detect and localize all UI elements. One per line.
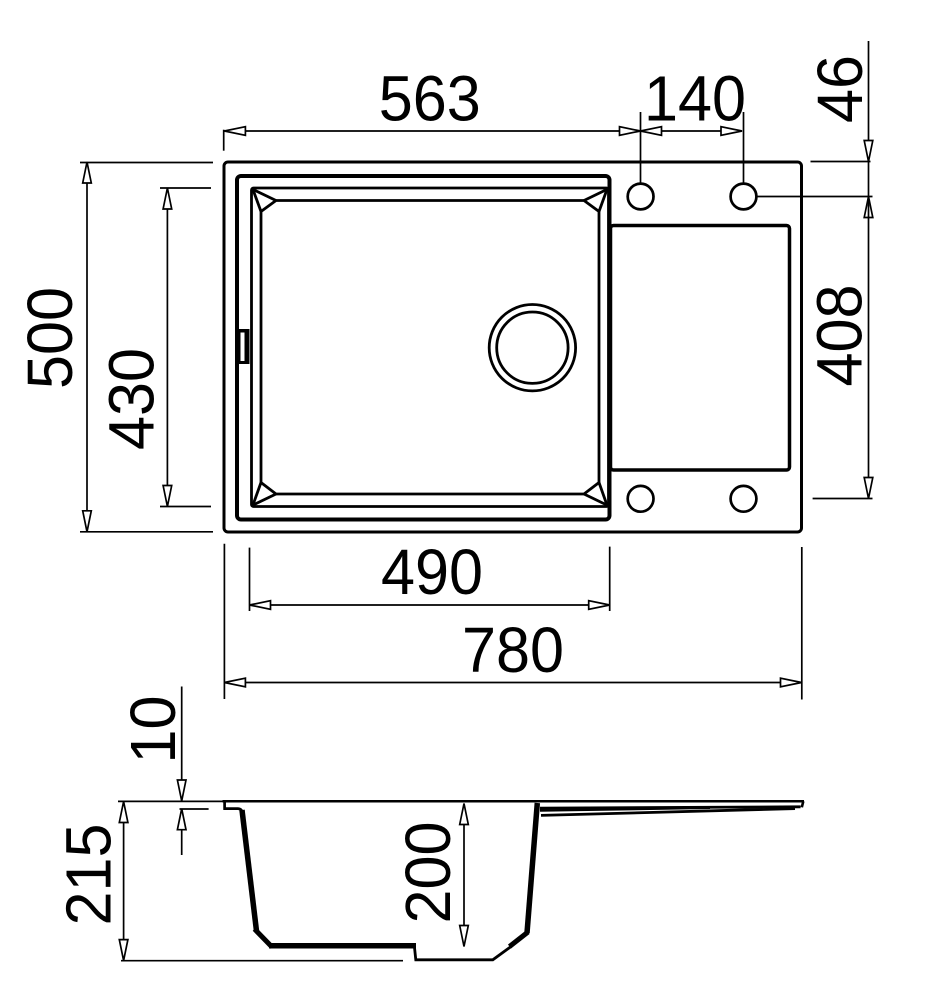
svg-text:215: 215 [53,824,125,926]
svg-text:780: 780 [462,614,564,686]
svg-text:10: 10 [117,696,189,764]
svg-text:563: 563 [379,63,481,135]
svg-text:500: 500 [14,287,86,389]
svg-text:46: 46 [804,55,876,123]
svg-text:408: 408 [804,285,876,387]
svg-text:140: 140 [644,63,746,135]
svg-text:200: 200 [392,822,464,924]
svg-text:430: 430 [96,348,168,450]
svg-text:490: 490 [381,536,483,608]
